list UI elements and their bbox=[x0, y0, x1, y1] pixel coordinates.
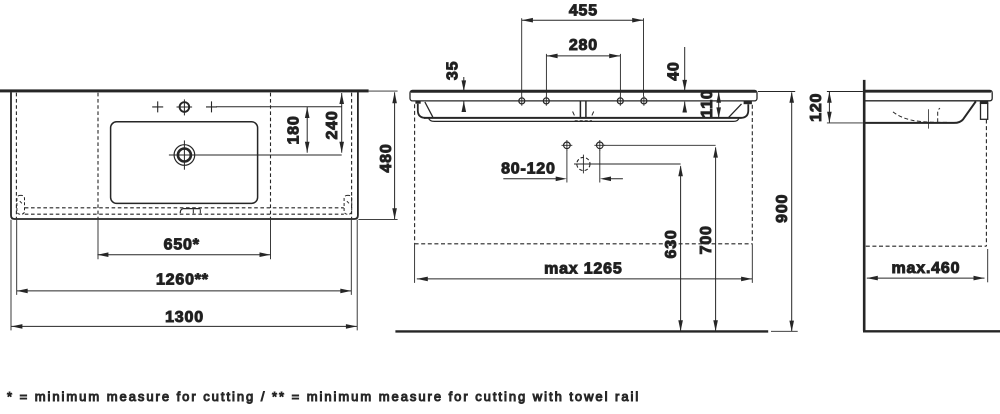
svg-text:40: 40 bbox=[665, 61, 682, 80]
svg-text:1300: 1300 bbox=[165, 309, 204, 326]
svg-text:455: 455 bbox=[569, 2, 598, 19]
svg-text:max.460: max.460 bbox=[892, 260, 961, 277]
svg-text:80-120: 80-120 bbox=[501, 161, 556, 178]
svg-text:280: 280 bbox=[569, 37, 598, 54]
svg-text:650*: 650* bbox=[164, 237, 200, 254]
svg-text:240: 240 bbox=[324, 110, 341, 139]
svg-text:* = minimum measure for cuttin: * = minimum measure for cutting / ** = m… bbox=[7, 389, 640, 404]
svg-text:max 1265: max 1265 bbox=[544, 261, 622, 278]
svg-text:180: 180 bbox=[285, 115, 302, 144]
svg-text:1260**: 1260** bbox=[156, 271, 209, 288]
svg-text:900: 900 bbox=[774, 194, 791, 223]
svg-text:630: 630 bbox=[663, 229, 680, 258]
svg-text:480: 480 bbox=[378, 143, 395, 172]
svg-text:35: 35 bbox=[445, 61, 462, 80]
svg-text:120: 120 bbox=[808, 93, 825, 122]
svg-text:700: 700 bbox=[698, 225, 715, 254]
svg-text:110: 110 bbox=[699, 89, 716, 117]
